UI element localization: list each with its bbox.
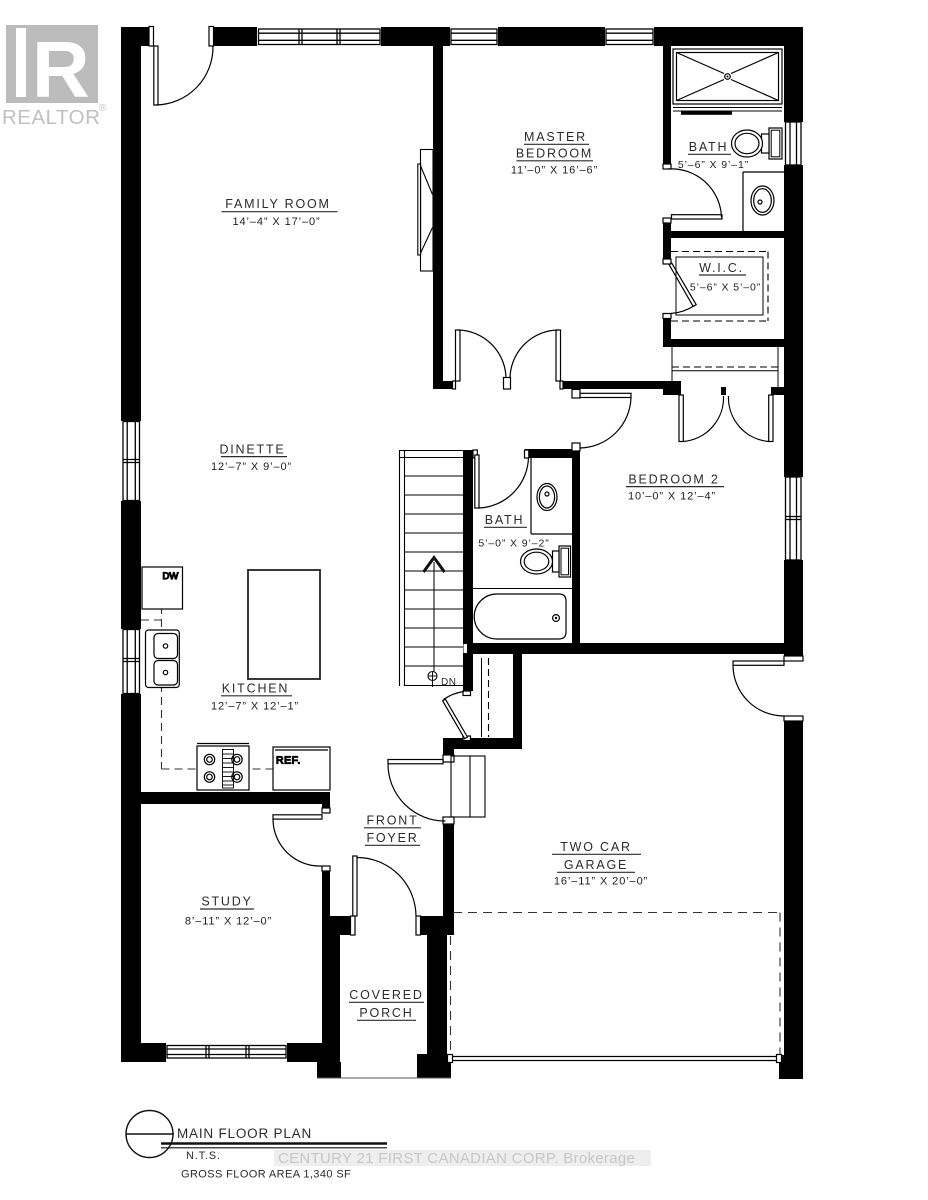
svg-text:KITCHEN: KITCHEN (222, 682, 289, 696)
svg-text:FOYER: FOYER (366, 831, 418, 845)
svg-text:N.T.S.: N.T.S. (186, 1150, 221, 1162)
svg-text:CENTURY 21 FIRST CANADIAN CORP: CENTURY 21 FIRST CANADIAN CORP. Brokerag… (278, 1150, 635, 1167)
svg-text:REF.: REF. (276, 755, 301, 767)
svg-text:W.I.C.: W.I.C. (699, 261, 744, 275)
svg-text:5’–6” X 5’–0”: 5’–6” X 5’–0” (690, 282, 761, 294)
svg-text:BATH: BATH (485, 513, 525, 527)
svg-text:TWO CAR: TWO CAR (560, 840, 632, 854)
svg-text:8’–11” X 12’–0”: 8’–11” X 12’–0” (185, 916, 272, 928)
svg-text:16’–11” X 20’–0”: 16’–11” X 20’–0” (554, 876, 648, 888)
svg-text:GARAGE: GARAGE (564, 858, 628, 872)
svg-text:DN: DN (441, 677, 456, 688)
svg-text:COVERED: COVERED (349, 988, 423, 1002)
svg-text:R: R (32, 25, 90, 114)
svg-text:10’–0” X 12’–4”: 10’–0” X 12’–4” (628, 491, 716, 503)
svg-text:BEDROOM: BEDROOM (516, 147, 593, 161)
svg-text:MAIN FLOOR PLAN: MAIN FLOOR PLAN (177, 1126, 312, 1141)
svg-text:BATH: BATH (689, 140, 729, 154)
svg-text:5’–6” X 9’–1”: 5’–6” X 9’–1” (678, 159, 749, 171)
svg-text:11’–0” X 16’–6”: 11’–0” X 16’–6” (511, 165, 598, 177)
svg-text:PORCH: PORCH (359, 1006, 413, 1020)
svg-text:12’–7” X 9’–0”: 12’–7” X 9’–0” (211, 461, 292, 473)
svg-text:BEDROOM 2: BEDROOM 2 (628, 472, 719, 486)
svg-text:DINETTE: DINETTE (219, 442, 285, 456)
svg-text:14’–4” X 17’–0”: 14’–4” X 17’–0” (232, 216, 320, 228)
svg-text:12’–7” X 12’–1”: 12’–7” X 12’–1” (211, 701, 299, 713)
svg-text:GROSS FLOOR AREA 1,340 SF: GROSS FLOOR AREA 1,340 SF (181, 1169, 351, 1181)
svg-text:REALTOR: REALTOR (2, 106, 100, 129)
svg-text:FRONT: FRONT (366, 814, 418, 828)
svg-text:MASTER: MASTER (524, 130, 587, 144)
svg-text:5’–0” X 9’–2”: 5’–0” X 9’–2” (478, 538, 549, 550)
svg-text:DW: DW (163, 571, 179, 582)
svg-text:FAMILY ROOM: FAMILY ROOM (225, 197, 330, 211)
svg-text:®: ® (99, 103, 107, 114)
svg-text:STUDY: STUDY (201, 894, 252, 908)
